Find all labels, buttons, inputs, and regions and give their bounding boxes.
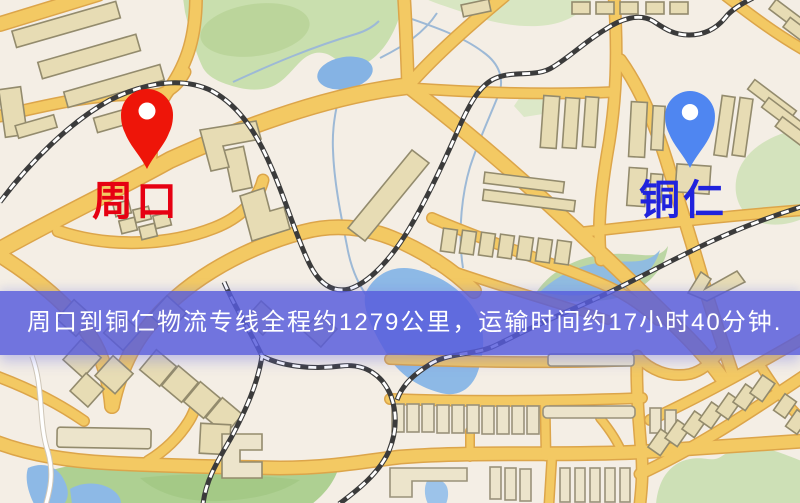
route-info-text: 周口到铜仁物流专线全程约1279公里，运输时间约17小时40分钟.	[0, 291, 800, 355]
route-info-banner: 周口到铜仁物流专线全程约1279公里，运输时间约17小时40分钟.	[0, 291, 800, 355]
map-graphic	[0, 0, 800, 503]
origin-city-label: 周口	[92, 181, 180, 222]
map-screenshot: 周口 铜仁 周口到铜仁物流专线全程约1279公里，运输时间约17小时40分钟.	[0, 0, 800, 503]
destination-city-label: 铜仁	[639, 180, 727, 221]
